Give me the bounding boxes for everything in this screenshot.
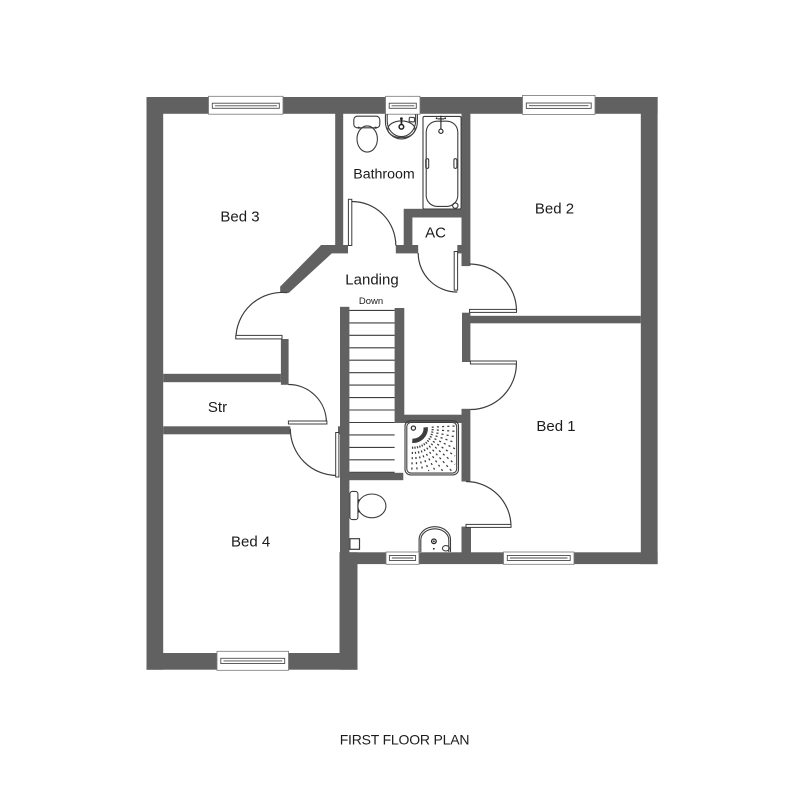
svg-text:Bed 2: Bed 2 bbox=[535, 201, 574, 218]
svg-text:Down: Down bbox=[359, 296, 383, 307]
svg-text:Bed 4: Bed 4 bbox=[231, 534, 270, 551]
svg-text:Bed 1: Bed 1 bbox=[536, 418, 575, 435]
svg-text:AC: AC bbox=[425, 225, 446, 242]
svg-text:Bathroom: Bathroom bbox=[353, 167, 415, 183]
svg-text:Str: Str bbox=[208, 399, 227, 416]
svg-text:Landing: Landing bbox=[345, 271, 398, 288]
svg-text:Bed 3: Bed 3 bbox=[220, 208, 259, 225]
svg-text:FIRST FLOOR PLAN: FIRST FLOOR PLAN bbox=[340, 732, 470, 748]
